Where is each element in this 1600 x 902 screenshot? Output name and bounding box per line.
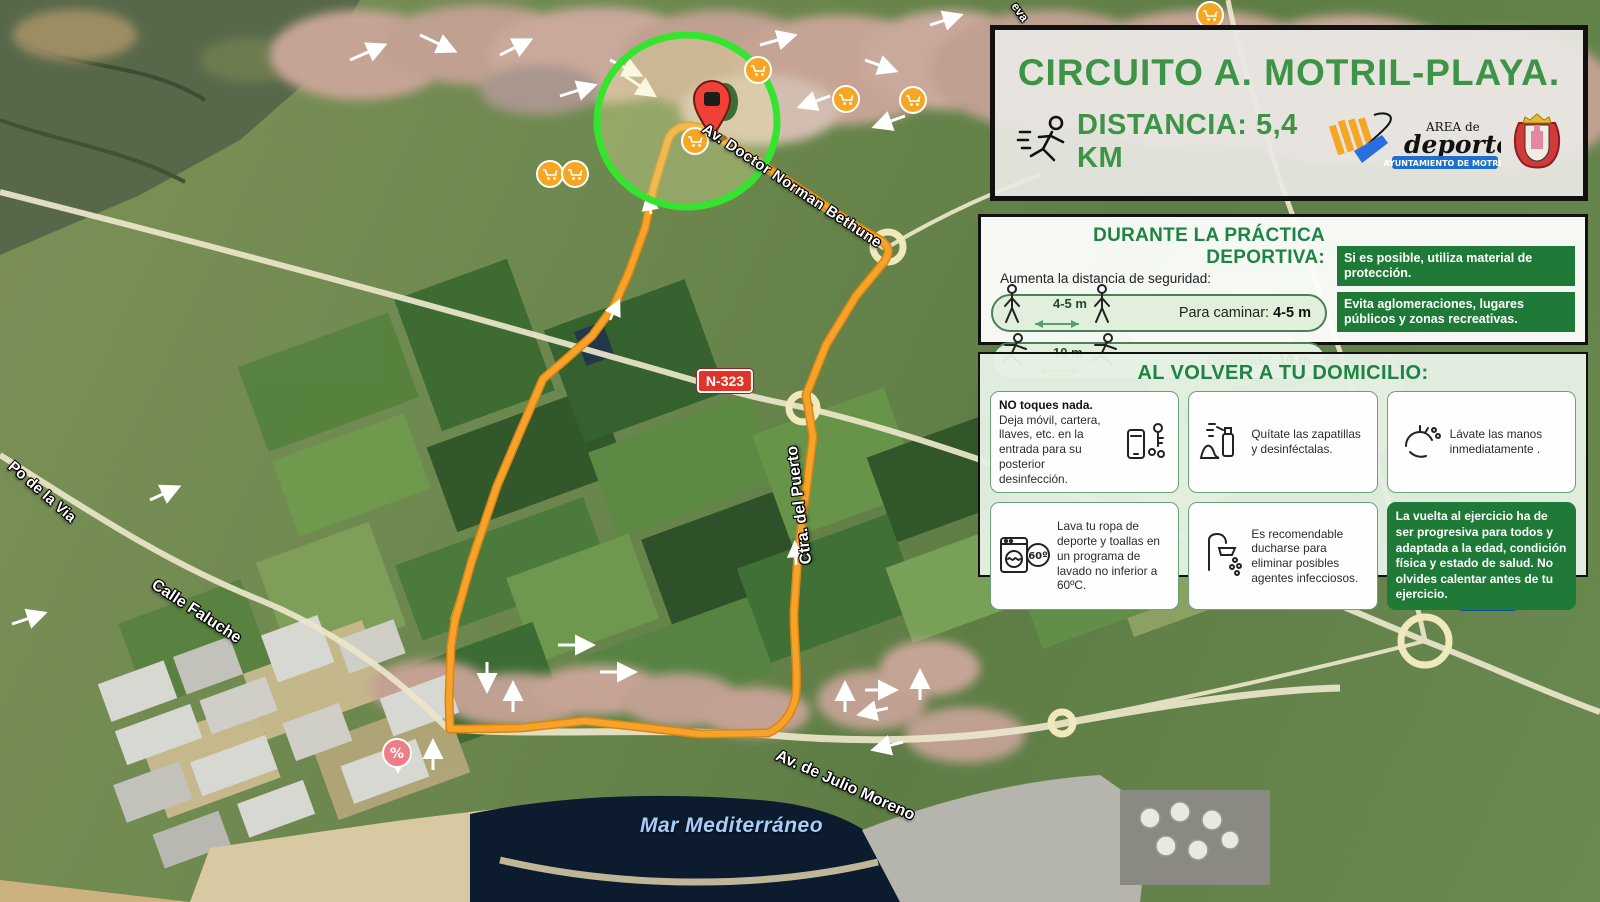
runner-icon bbox=[1015, 112, 1077, 173]
home-header: AL VOLVER A TU DOMICILIO: bbox=[990, 362, 1576, 385]
walker-icon bbox=[1001, 284, 1023, 331]
distance-arrow-icon bbox=[1025, 317, 1089, 331]
phone-keys-icon bbox=[1122, 416, 1170, 468]
shoe-spray-icon bbox=[1197, 416, 1245, 468]
card-text: Lava tu ropa de deporte y toallas en un … bbox=[1057, 519, 1170, 593]
card-text: La vuelta al ejercicio ha de ser progres… bbox=[1396, 509, 1567, 603]
card-lavadora: 60º Lava tu ropa de deporte y toallas en… bbox=[990, 502, 1179, 610]
practice-panel: DURANTE LA PRÁCTICA DEPORTIVA: Aumenta l… bbox=[978, 214, 1588, 345]
sea-label: Mar Mediterráneo bbox=[640, 814, 823, 838]
map-infographic: % Av. Doctor Norman Bethune Ctra. del Pu… bbox=[0, 0, 1600, 902]
card-text: NO toques nada.Deja móvil, cartera, llav… bbox=[999, 398, 1116, 486]
practice-header: DURANTE LA PRÁCTICA DEPORTIVA: bbox=[991, 225, 1325, 269]
svg-text:deportes: deportes bbox=[1404, 130, 1501, 159]
walking-distance-row: 4-5 m Para caminar: 4-5 m bbox=[991, 294, 1327, 332]
washing-machine-icon: 60º bbox=[999, 530, 1051, 582]
card-text: Es recomendable ducharse para eliminar p… bbox=[1251, 527, 1368, 586]
road-badge-n323: N-323 bbox=[697, 369, 753, 393]
note-protection: Si es posible, utiliza material de prote… bbox=[1337, 246, 1575, 286]
card-no-tocar: NO toques nada.Deja móvil, cartera, llav… bbox=[990, 391, 1179, 493]
distance-text: DISTANCIA: 5,4 KM bbox=[1077, 109, 1326, 175]
card-manos: Lávate las manos inmediatamente . bbox=[1387, 391, 1576, 493]
area-deportes-logo: AREA de deportes AYUNTAMIENTO DE MOTRIL bbox=[1326, 109, 1501, 176]
card-text: Quítate las zapatillas y desinféctalas. bbox=[1251, 427, 1368, 456]
home-panel: AL VOLVER A TU DOMICILIO: NO toques nada… bbox=[978, 352, 1588, 577]
wash-hands-icon bbox=[1396, 416, 1444, 468]
svg-text:%: % bbox=[390, 746, 404, 762]
poi-icon: % bbox=[383, 739, 411, 767]
card-text: Lávate las manos inmediatamente . bbox=[1450, 427, 1567, 456]
shower-icon bbox=[1197, 530, 1245, 582]
card-zapatillas: Quítate las zapatillas y desinféctalas. bbox=[1188, 391, 1377, 493]
walker-icon bbox=[1091, 284, 1113, 331]
note-crowds: Evita aglomeraciones, lugares públicos y… bbox=[1337, 292, 1575, 332]
walking-distance-value: 4-5 m bbox=[1053, 296, 1087, 311]
card-vuelta-ejercicio: La vuelta al ejercicio ha de ser progres… bbox=[1387, 502, 1576, 610]
washer-temp: 60º bbox=[1028, 551, 1048, 562]
card-ducha: Es recomendable ducharse para eliminar p… bbox=[1188, 502, 1377, 610]
circuit-title: CIRCUITO A. MOTRIL-PLAYA. bbox=[1009, 52, 1569, 94]
title-panel: CIRCUITO A. MOTRIL-PLAYA. DISTANCIA: 5,4… bbox=[990, 25, 1588, 201]
walking-text: Para caminar: 4-5 m bbox=[1179, 305, 1311, 321]
svg-text:AYUNTAMIENTO DE MOTRIL: AYUNTAMIENTO DE MOTRIL bbox=[1384, 159, 1501, 168]
motril-crest bbox=[1511, 109, 1563, 176]
